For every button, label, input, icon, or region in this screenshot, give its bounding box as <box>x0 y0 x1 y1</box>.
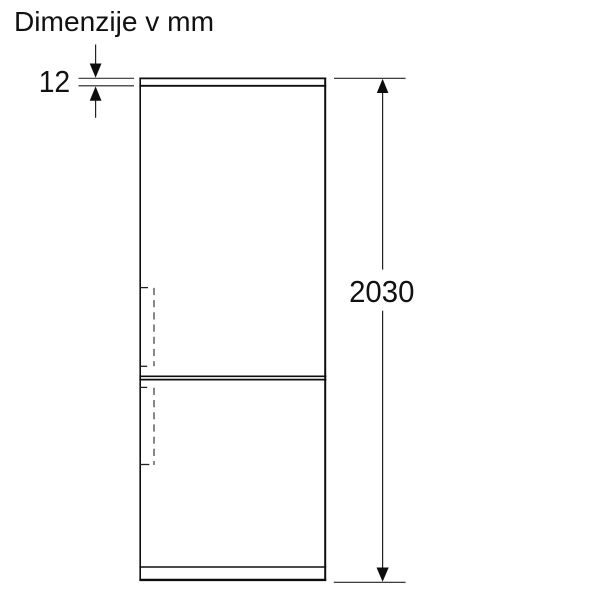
svg-text:12: 12 <box>39 64 71 99</box>
svg-text:Dimenzije v mm: Dimenzije v mm <box>14 6 214 37</box>
svg-text:2030: 2030 <box>349 274 414 309</box>
